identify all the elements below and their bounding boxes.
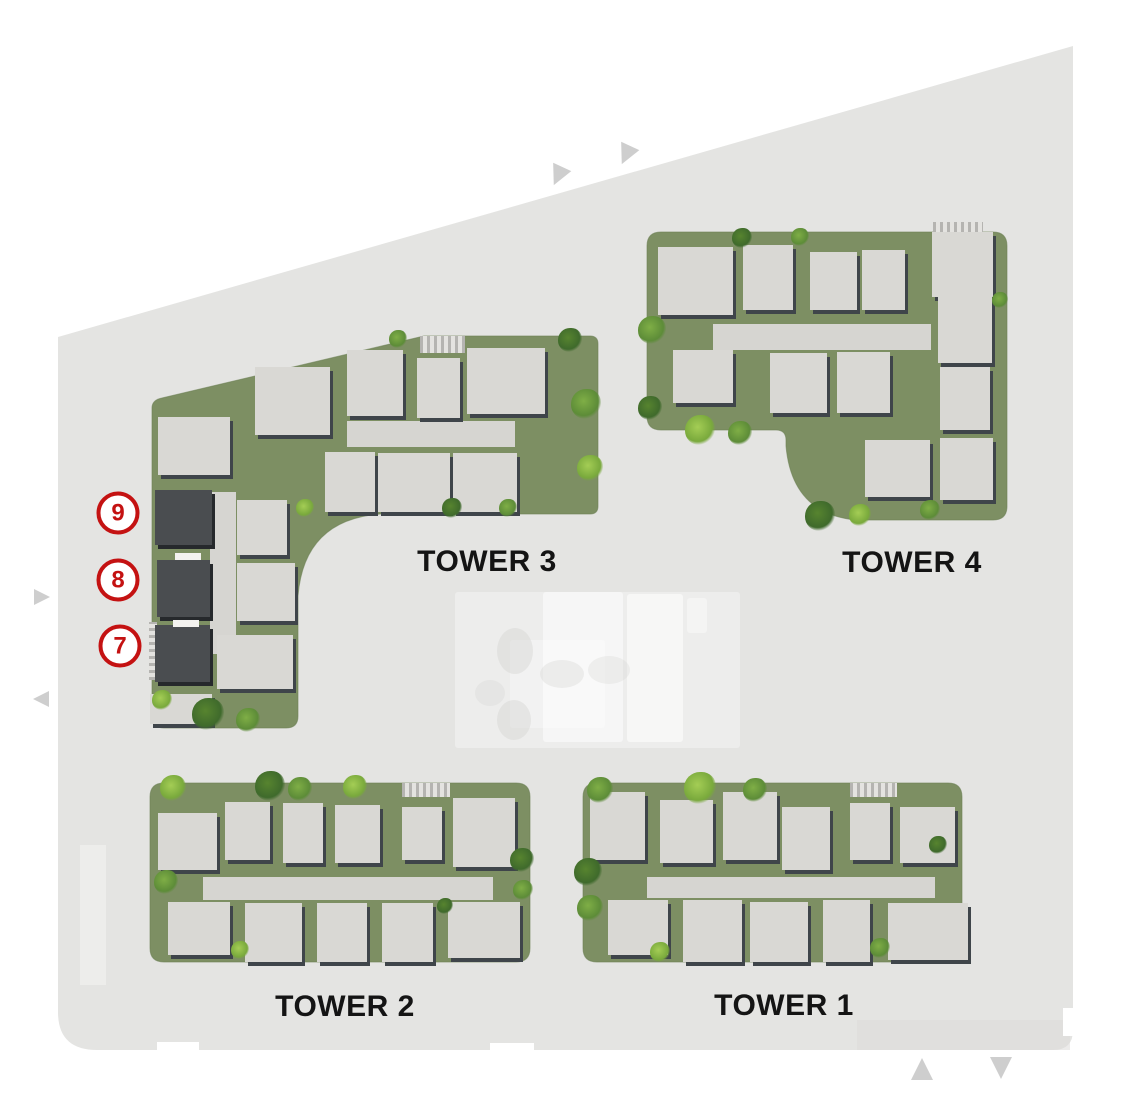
unit-marker-7-number: 7 xyxy=(113,632,126,660)
tower-3-walkway xyxy=(347,421,515,447)
shrub xyxy=(255,771,285,801)
shrub xyxy=(791,228,809,246)
unit-marker-7[interactable]: 7 xyxy=(99,625,142,668)
shrub xyxy=(577,455,603,481)
unit-detail xyxy=(175,553,201,560)
tower-4-building xyxy=(940,367,990,430)
tower-4-walkway xyxy=(713,324,931,350)
tower-4-building xyxy=(770,353,827,413)
tower-2-building xyxy=(317,903,367,962)
tower-3-walkway xyxy=(210,492,236,654)
tower-1-building xyxy=(782,807,830,870)
tower-4-building xyxy=(940,438,993,500)
tower-2-building xyxy=(453,798,515,867)
tower-1-building xyxy=(850,803,890,860)
shrub xyxy=(685,415,715,445)
tower-2-building xyxy=(335,805,380,863)
shrub xyxy=(154,870,178,894)
tower-2-parking-ramp xyxy=(402,783,450,797)
unit-marker-8[interactable]: 8 xyxy=(97,559,140,602)
shrub xyxy=(343,775,367,799)
tower-3-building xyxy=(347,350,403,416)
tower-1-walkway xyxy=(647,877,935,898)
tower-3-building xyxy=(325,452,375,512)
selected-unit-8[interactable] xyxy=(157,560,210,617)
tower-2-building xyxy=(245,903,302,962)
shrub xyxy=(442,498,462,518)
selected-unit-7[interactable] xyxy=(155,625,210,682)
shrub xyxy=(296,499,314,517)
selected-unit-9[interactable] xyxy=(155,490,212,545)
tower-2-label: TOWER 2 xyxy=(275,990,415,1024)
amenity-feature xyxy=(588,656,630,684)
tower-4-building xyxy=(658,247,733,315)
shrub xyxy=(805,501,835,531)
shrub xyxy=(571,389,601,419)
shrub xyxy=(192,698,224,730)
unit-detail xyxy=(173,620,199,627)
shrub xyxy=(650,942,670,962)
tower-3-building xyxy=(217,635,293,689)
tower-1-label: TOWER 1 xyxy=(714,989,854,1023)
shrub xyxy=(499,499,517,517)
shrub xyxy=(638,396,662,420)
unit-marker-8-number: 8 xyxy=(111,566,124,594)
shrub xyxy=(513,880,533,900)
shrub xyxy=(160,775,186,801)
shrub xyxy=(849,504,871,526)
tower-2-building xyxy=(448,902,520,958)
amenity-feature xyxy=(497,700,531,740)
shrub xyxy=(236,708,260,732)
shrub xyxy=(510,848,534,872)
unit-marker-9-number: 9 xyxy=(111,499,124,527)
tower-1-building xyxy=(888,903,968,960)
site-plan: TOWER 1 TOWER 2 TOWER 3 TOWER 4 9 8 7 xyxy=(0,0,1144,1119)
tower-3-building xyxy=(378,453,450,512)
shrub xyxy=(577,895,603,921)
tower-2-building xyxy=(283,803,323,863)
tower-4-label: TOWER 4 xyxy=(842,546,982,580)
tower-1-parking-ramp xyxy=(850,783,897,797)
tower-1-building xyxy=(823,900,870,962)
tower-3-label: TOWER 3 xyxy=(417,545,557,579)
tower-4-building xyxy=(862,250,905,310)
shrub xyxy=(558,328,582,352)
shrub xyxy=(870,938,890,958)
tower-3-building xyxy=(237,500,287,555)
tower-3-building xyxy=(467,348,545,414)
tower-1-building xyxy=(900,807,955,863)
amenity-area xyxy=(627,594,683,742)
amenity-feature xyxy=(540,660,584,688)
tower-4-building xyxy=(932,232,993,297)
tower-2-building xyxy=(225,802,270,860)
tower-4-building xyxy=(837,352,890,413)
tower-2-building xyxy=(402,807,442,860)
tower-2-building xyxy=(382,903,433,962)
tower-3-parking-ramp xyxy=(420,336,465,353)
tower-3-building xyxy=(417,358,460,418)
amenity-feature xyxy=(497,628,533,674)
tower-1-building xyxy=(750,902,808,962)
shrub xyxy=(992,292,1008,308)
shrub xyxy=(574,858,602,886)
tower-1-building xyxy=(660,800,713,863)
tower-4-building xyxy=(938,297,992,363)
tower-1-building xyxy=(723,792,777,860)
tower-2-building xyxy=(168,902,230,955)
tower-2-walkway xyxy=(203,877,493,900)
tower-4-building xyxy=(810,252,857,310)
unit-marker-9[interactable]: 9 xyxy=(97,492,140,535)
shrub xyxy=(920,500,940,520)
tower-3-building xyxy=(158,417,230,475)
shrub xyxy=(638,316,666,344)
shrub xyxy=(288,777,312,801)
shrub xyxy=(389,330,407,348)
tower-4-building xyxy=(673,350,733,403)
amenity-feature xyxy=(475,680,505,706)
tower-3-building xyxy=(255,367,330,435)
tower-2-building xyxy=(158,813,217,870)
tower-4-building xyxy=(865,440,930,497)
tower-4-building xyxy=(743,245,793,310)
shrub xyxy=(728,421,752,445)
tower-1-building xyxy=(683,900,742,962)
amenity-area xyxy=(687,598,707,633)
tower-3-building xyxy=(237,563,295,621)
